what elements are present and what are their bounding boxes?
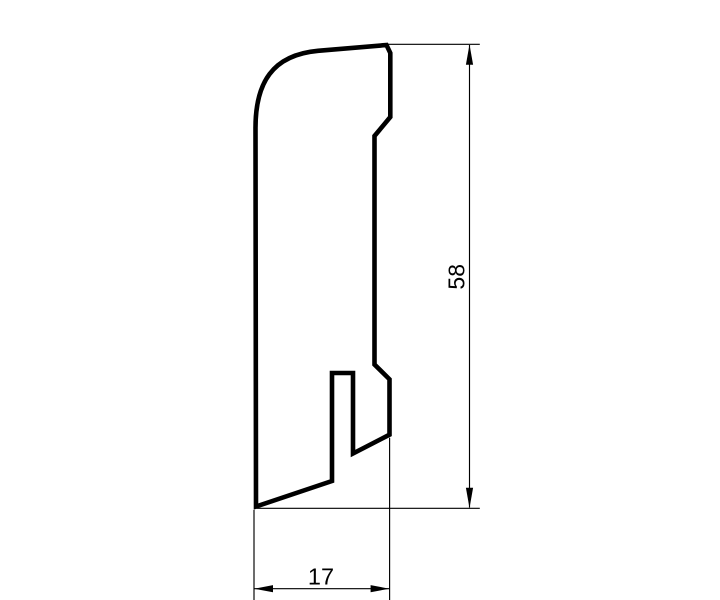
svg-text:17: 17 [308, 564, 334, 590]
svg-text:58: 58 [444, 264, 470, 290]
